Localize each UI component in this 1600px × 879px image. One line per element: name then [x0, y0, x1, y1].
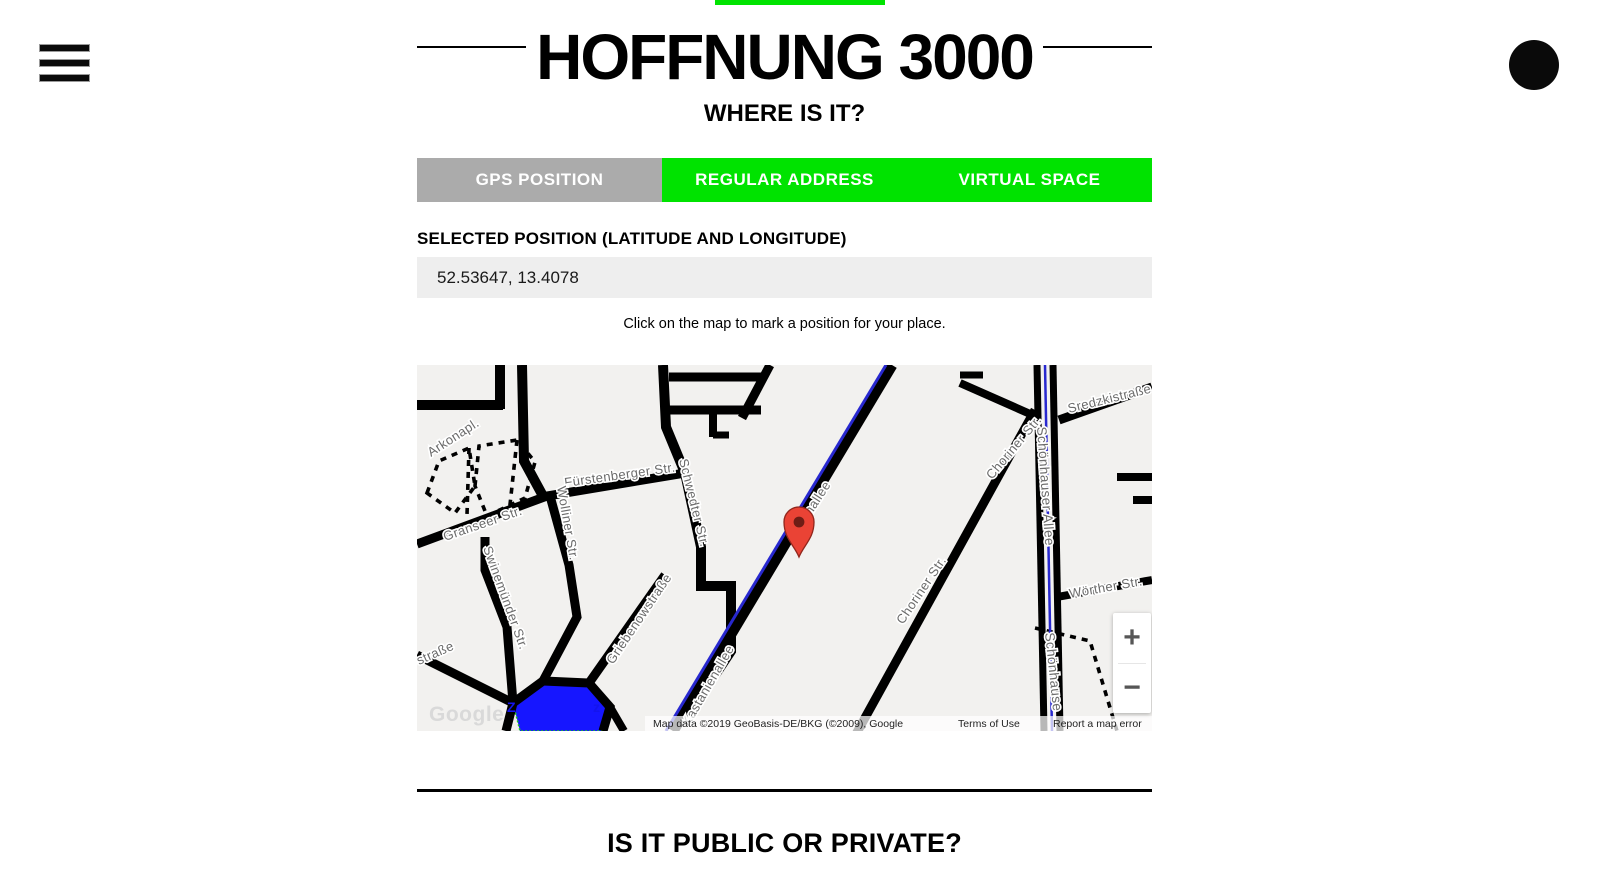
zoom-out-button[interactable]: − [1113, 664, 1151, 714]
park-letter: z [593, 699, 600, 715]
location-type-tabs: GPS POSITION REGULAR ADDRESS VIRTUAL SPA… [417, 158, 1152, 202]
tab-virtual-space[interactable]: VIRTUAL SPACE [907, 158, 1152, 202]
park-letter: Z [507, 699, 516, 715]
report-map-error-link[interactable]: Report a map error [1053, 718, 1142, 730]
main-content: HOFFNUNG 3000 WHERE IS IT? GPS POSITION … [417, 0, 1152, 879]
zoom-in-button[interactable]: + [1113, 613, 1151, 663]
selected-position-label: SELECTED POSITION (LATITUDE AND LONGITUD… [417, 229, 847, 249]
map-zoom-control: + − [1113, 613, 1151, 713]
map-canvas[interactable]: Z z Arkonapl.Fürstenberger Str.Granseer … [417, 365, 1152, 731]
menu-icon[interactable] [39, 44, 90, 85]
menu-icon-bar [39, 44, 90, 52]
page-subtitle: WHERE IS IT? [417, 100, 1152, 128]
page-title: HOFFNUNG 3000 [417, 18, 1152, 96]
google-logo: Google [429, 703, 504, 726]
map-attribution: Map data ©2019 GeoBasis-DE/BKG (©2009), … [653, 718, 903, 730]
tab-gps-position[interactable]: GPS POSITION [417, 158, 662, 202]
menu-icon-bar [39, 59, 90, 67]
avatar[interactable] [1509, 40, 1559, 90]
map-hint-text: Click on the map to mark a position for … [417, 316, 1152, 332]
position-input[interactable] [417, 257, 1152, 298]
section-divider [417, 789, 1152, 792]
terms-of-use-link[interactable]: Terms of Use [958, 718, 1020, 730]
menu-icon-bar [39, 74, 90, 82]
next-section-heading: IS IT PUBLIC OR PRIVATE? [417, 828, 1152, 859]
tab-regular-address[interactable]: REGULAR ADDRESS [662, 158, 907, 202]
